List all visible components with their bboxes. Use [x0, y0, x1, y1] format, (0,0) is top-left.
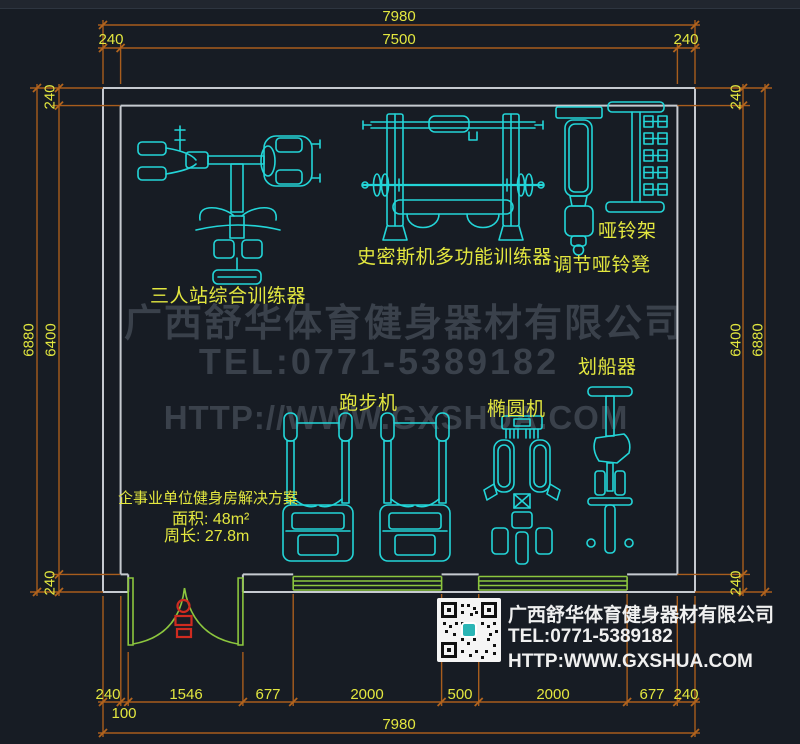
- dim-left-bottom: 240: [42, 570, 59, 595]
- dim-left-outer: 6880: [21, 323, 38, 356]
- dim-bottom-seg-3: 2000: [350, 686, 383, 703]
- dim-right-top: 240: [728, 84, 745, 109]
- dim-right-outer: 6880: [750, 323, 767, 356]
- equipment-multi-station: [138, 126, 320, 284]
- solution-perimeter: 周长: 27.8m: [164, 522, 249, 546]
- dim-left-inner: 6400: [43, 323, 60, 356]
- dim-bottom-overall: 7980: [382, 716, 415, 733]
- label-dumbbell-bench: 调节哑铃凳: [553, 250, 651, 277]
- dim-bottom-seg-4: 500: [447, 686, 472, 703]
- footer-company: 广西舒华体育健身器材有限公司: [508, 600, 774, 627]
- equipment-elliptical: [484, 416, 560, 564]
- dim-bottom-seg-5: 2000: [536, 686, 569, 703]
- label-smith-machine: 史密斯机多功能训练器: [357, 242, 552, 269]
- equipment-dumbbell-bench: [556, 107, 602, 255]
- footer-tel: TEL:0771-5389182: [508, 626, 673, 648]
- footer-url: HTTP:WWW.GXSHUA.COM: [508, 651, 753, 673]
- plan-linework: [0, 0, 800, 744]
- dim-bottom-seg-6: 677: [639, 686, 664, 703]
- dim-bottom-seg-7: 240: [673, 686, 698, 703]
- dim-left-top: 240: [42, 84, 59, 109]
- dim-bottom-seg-2: 677: [255, 686, 280, 703]
- dim-bottom-seg-0: 240: [95, 686, 120, 703]
- door-symbol: [176, 600, 192, 637]
- dim-right-inner: 6400: [728, 323, 745, 356]
- label-treadmill: 跑步机: [339, 388, 398, 415]
- label-multi-station: 三人站综合训练器: [150, 281, 306, 308]
- equipment-treadmill-2: [380, 413, 450, 561]
- qr-code: [437, 598, 501, 662]
- dim-top-middle: 7500: [382, 31, 415, 48]
- cad-canvas: 广西舒华体育健身器材有限公司 TEL:0771-5389182 HTTP://W…: [0, 0, 800, 744]
- dim-bottom-offset: 100: [111, 705, 136, 722]
- dim-top-right: 240: [673, 31, 698, 48]
- label-rower: 划船器: [578, 352, 637, 379]
- equipment-dumbbell-rack: [606, 102, 667, 212]
- equipment-rower: [587, 387, 633, 553]
- label-elliptical: 椭圆机: [487, 394, 546, 421]
- dim-bottom-seg-1: 1546: [169, 686, 202, 703]
- dim-top-left: 240: [98, 31, 123, 48]
- equipment-smith-machine: [362, 114, 544, 240]
- dim-top-overall: 7980: [382, 8, 415, 25]
- window-strips: [293, 577, 627, 591]
- label-dumbbell-rack: 哑铃架: [598, 216, 657, 243]
- dim-right-bottom: 240: [728, 570, 745, 595]
